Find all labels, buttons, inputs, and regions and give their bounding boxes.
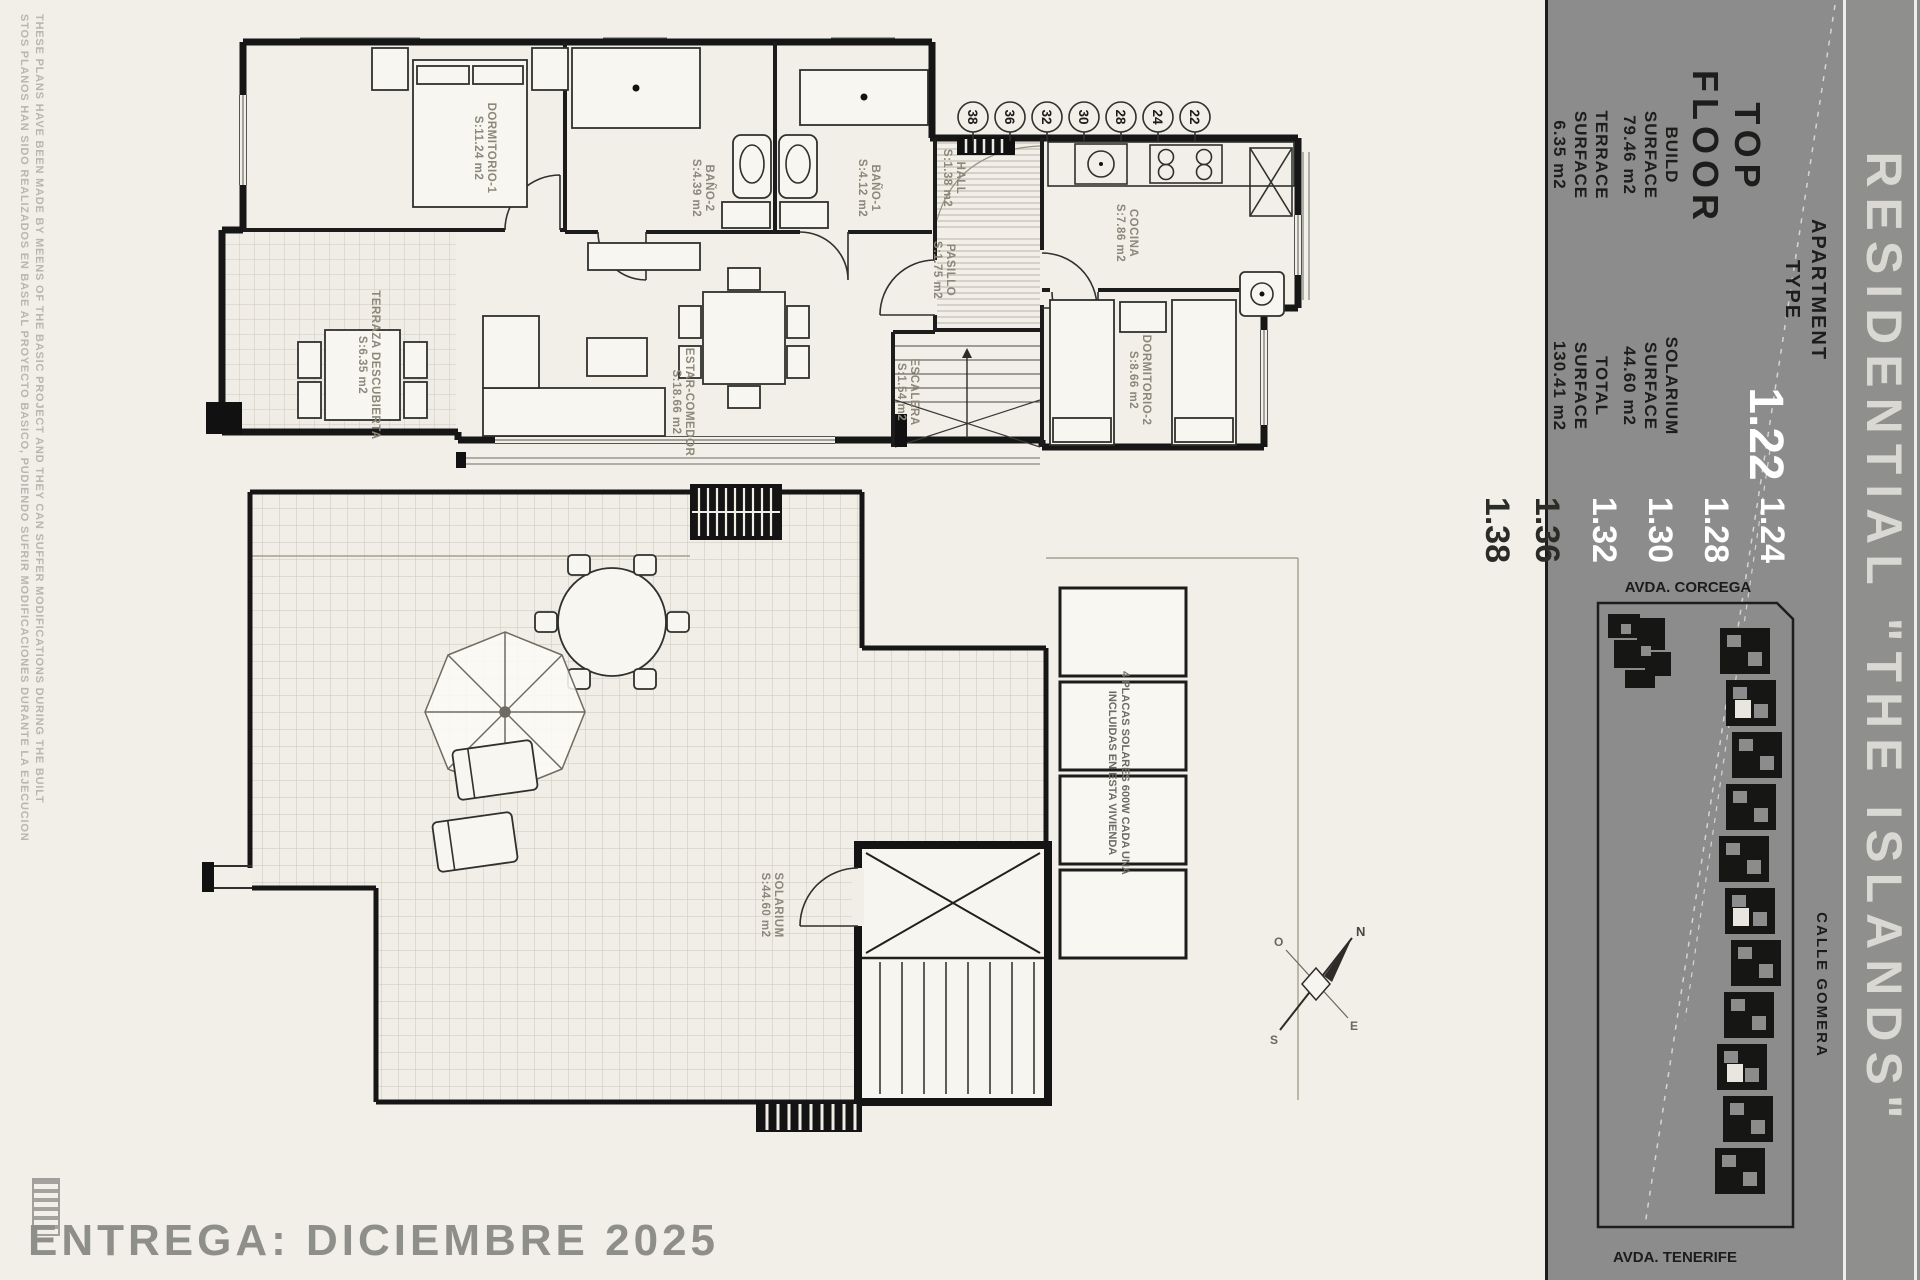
solarium-plan-svg: 4 PLACAS SOLARES 600W CADA UNAINCLUIDAS … bbox=[195, 475, 1345, 1145]
apartment-number-main: 1.22 bbox=[1738, 378, 1792, 490]
site-building-cluster bbox=[1608, 614, 1671, 688]
compass-n: N bbox=[1356, 924, 1365, 939]
room-label-escalera: ESCALERAS:1.54 m2 bbox=[895, 358, 920, 425]
compass-s: S bbox=[1270, 1033, 1278, 1047]
disclaimer-es: STOS PLANOS HAN SIDO REALIZADOS EN BASE … bbox=[16, 14, 31, 1264]
solar-panels-note: 4 PLACAS SOLARES 600W CADA UNAINCLUIDAS … bbox=[1106, 671, 1131, 875]
street-gomera: CALLE GOMERA bbox=[1813, 912, 1830, 1058]
unit-circle-label: 28 bbox=[1113, 109, 1128, 125]
meter-box bbox=[957, 137, 1015, 155]
room-label-pasillo: PASILLOS:1.75 m2 bbox=[931, 241, 956, 299]
disclaimer: THESE PLANS HAVE BEEN MADE BY MEENS OF T… bbox=[16, 14, 46, 1264]
unit-circle-label: 38 bbox=[965, 109, 980, 125]
bedroom1-furniture bbox=[372, 48, 568, 207]
room-label-bano-2: BAÑO-2S:4.39 m2 bbox=[690, 159, 716, 217]
unit-circle-label: 36 bbox=[1002, 109, 1017, 125]
surface-total: TOTAL SURFACE 130.41 m2 bbox=[1549, 288, 1612, 484]
surface-build: BUILD SURFACE 79.46 m2 bbox=[1619, 40, 1682, 270]
room-label-dormitorio-2: DORMITORIO-2S:8.66 m2 bbox=[1127, 335, 1152, 426]
compass-rose: N E S O bbox=[1262, 918, 1374, 1058]
delivery-text: ENTREGA: DICIEMBRE 2025 bbox=[28, 1216, 719, 1266]
room-label-cocina: COCINAS:7.86 m2 bbox=[1114, 204, 1139, 262]
unit-circle-label: 32 bbox=[1039, 109, 1054, 124]
surface-solarium: SOLARIUM SURFACE 44.60 m2 bbox=[1619, 288, 1682, 484]
surface-terrace: TERRACE SURFACE 6.35 m2 bbox=[1549, 40, 1612, 270]
disclaimer-en: THESE PLANS HAVE BEEN MADE BY MEENS OF T… bbox=[31, 14, 46, 1264]
vent-grill bbox=[690, 484, 782, 540]
room-label-bano-1: BAÑO-1S:4.12 m2 bbox=[856, 159, 882, 217]
floor-plan-svg: 38 36 32 30 28 24 22 DORMITORIO-1S:11.24… bbox=[195, 20, 1325, 475]
ledge bbox=[202, 862, 252, 892]
compass-e: E bbox=[1350, 1019, 1358, 1033]
room-label-dormitorio-1: DORMITORIO-1S:11.24 m2 bbox=[472, 103, 497, 194]
unit-circle-label: 30 bbox=[1076, 109, 1091, 124]
compass-w: O bbox=[1274, 935, 1283, 949]
site-building-row bbox=[1715, 628, 1782, 1194]
street-corcega: AVDA. CORCEGA bbox=[1625, 579, 1752, 596]
apartment-number-list: 1.24 1.28 1.30 1.32 bbox=[1576, 485, 1800, 575]
residential-name: RESIDENTIAL "THE ISLANDS" bbox=[1855, 28, 1913, 1252]
floor-title: TOP FLOOR bbox=[1684, 28, 1768, 268]
unit-circle-label: 24 bbox=[1150, 109, 1165, 125]
room-label-solarium: SOLARIUMS:44.60 m2 bbox=[759, 872, 784, 937]
unit-circle-label: 22 bbox=[1187, 109, 1202, 124]
apartment-number-outside: 1.36 1.38 bbox=[1472, 485, 1572, 575]
street-tenerife: AVDA. TENERIFE bbox=[1613, 1249, 1737, 1266]
plan-sheet: THESE PLANS HAVE BEEN MADE BY MEENS OF T… bbox=[0, 0, 1920, 1280]
lower-vent-strip bbox=[756, 1102, 862, 1132]
